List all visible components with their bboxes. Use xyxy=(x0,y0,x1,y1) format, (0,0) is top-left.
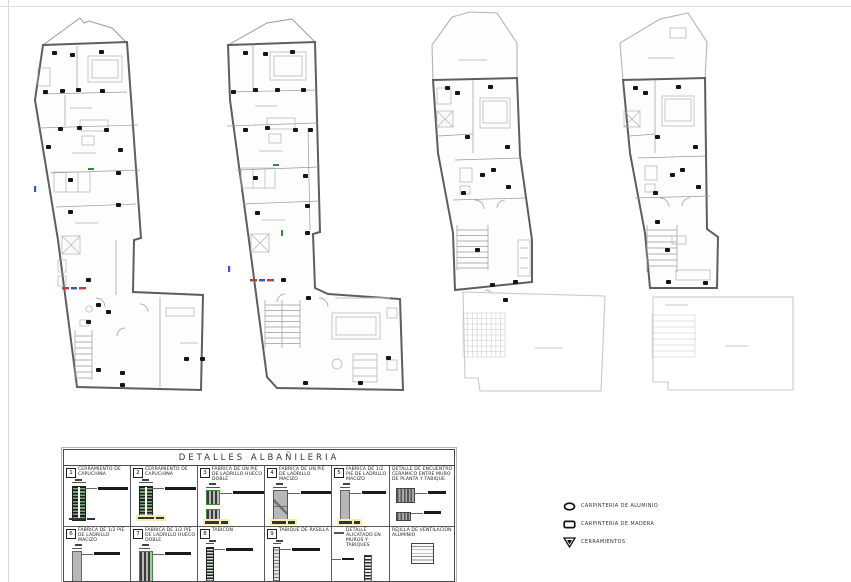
table-title: DETALLES ALBAÑILERIA xyxy=(64,450,454,466)
legend-label: CERRAMIENTOS xyxy=(581,539,625,545)
sheet-frame-top xyxy=(0,6,851,7)
detail-drawing xyxy=(133,478,196,522)
detail-label: FABRICA DE 1/2 PIE DE LADRILLO HUECO DOB… xyxy=(145,528,196,543)
detail-cell-8: 8 TABICON xyxy=(198,527,265,582)
detail-label: FABRICA DE UN PIE DE LADRILLO HUECO DOBL… xyxy=(212,467,263,482)
detail-drawing xyxy=(66,543,129,582)
detail-cell-6: 6 FABRICA DE 1/2 PIE DE LADRILLO MACIZO xyxy=(64,527,131,582)
detail-cell-5: 5 FABRICA DE 1/2 PIE DE LADRILLO MACIZO xyxy=(332,466,390,527)
detail-label: CERRAMIENTO DE CAPUCHINA xyxy=(78,467,129,477)
dash-icon xyxy=(334,532,344,534)
detail-cell-tiling: DETALLE ALICATADO EN MUROS Y TABIQUES xyxy=(332,527,390,582)
detail-label: TABICON xyxy=(212,528,233,533)
detail-number: 8 xyxy=(200,529,210,539)
detail-number: 3 xyxy=(200,468,210,478)
rect-icon xyxy=(563,520,576,529)
detail-number: 9 xyxy=(267,529,277,539)
legend-label: CARPINTERIA DE ALUMINIO xyxy=(581,503,658,509)
detail-label: REJILLA DE VENTILACION ALUMINIO xyxy=(392,528,453,538)
legend-item-aluminum: CARPINTERIA DE ALUMINIO xyxy=(563,497,658,515)
detail-label: DETALLE DE ENCUENTRO CERAMICO ENTRE MURO… xyxy=(392,467,453,482)
detail-cell-vent-grille: REJILLA DE VENTILACION ALUMINIO xyxy=(390,527,454,582)
detail-drawing xyxy=(392,482,453,526)
masonry-details-table: DETALLES ALBAÑILERIA 1 CERRAMIENTO DE CA… xyxy=(63,449,455,582)
detail-drawing xyxy=(66,478,129,522)
detail-number: 5 xyxy=(334,468,344,478)
ellipse-icon xyxy=(563,502,576,511)
detail-label: FABRICA DE UN PIE DE LADRILLO MACIZO xyxy=(279,467,330,482)
detail-number: 2 xyxy=(133,468,143,478)
legend-item-wood: CARPINTERIA DE MADERA xyxy=(563,515,658,533)
detail-cell-2: 2 CERRAMIENTO DE CAPUCHINA xyxy=(131,466,198,527)
architectural-sheet: DETALLES ALBAÑILERIA 1 CERRAMIENTO DE CA… xyxy=(0,0,851,582)
detail-drawing xyxy=(200,539,263,582)
detail-label: FABRICA DE 1/2 PIE DE LADRILLO MACIZO xyxy=(346,467,388,482)
detail-label: CERRAMIENTO DE CAPUCHINA xyxy=(145,467,196,477)
ventilation-grille xyxy=(411,543,434,564)
detail-number: 4 xyxy=(267,468,277,478)
floor-plan-4 xyxy=(610,8,805,403)
detail-number: 1 xyxy=(66,468,76,478)
floor-plan-3 xyxy=(425,8,610,408)
detail-number: 7 xyxy=(133,529,143,539)
legend-label: CARPINTERIA DE MADERA xyxy=(581,521,654,527)
legend-item-enclosures: CERRAMIENTOS xyxy=(563,533,658,551)
sheet-frame-left xyxy=(8,0,9,582)
triangle-icon xyxy=(563,537,576,548)
detail-label: FABRICA DE 1/2 PIE DE LADRILLO MACIZO xyxy=(78,528,129,543)
detail-drawing xyxy=(133,543,196,582)
detail-cell-4: 4 FABRICA DE UN PIE DE LADRILLO MACIZO xyxy=(265,466,332,527)
detail-label: DETALLE ALICATADO EN MUROS Y TABIQUES xyxy=(346,528,388,549)
detail-cell-ceramic-joint: DETALLE DE ENCUENTRO CERAMICO ENTRE MURO… xyxy=(390,466,454,527)
detail-label: TABIQUE DE RASILLA xyxy=(279,528,329,533)
detail-cell-7: 7 FABRICA DE 1/2 PIE DE LADRILLO HUECO D… xyxy=(131,527,198,582)
detail-drawing xyxy=(392,543,453,582)
detail-cell-1: 1 CERRAMIENTO DE CAPUCHINA xyxy=(64,466,131,527)
floor-plan-2 xyxy=(215,8,415,408)
detail-drawing xyxy=(267,482,330,526)
detail-cell-3: 3 FABRICA DE UN PIE DE LADRILLO HUECO DO… xyxy=(198,466,265,527)
detail-drawing xyxy=(334,549,388,582)
detail-number: 6 xyxy=(66,529,76,539)
detail-drawing xyxy=(200,482,263,526)
detail-cell-9: 9 TABIQUE DE RASILLA xyxy=(265,527,332,582)
floor-plan-1 xyxy=(30,8,215,408)
detail-drawing xyxy=(334,482,388,526)
carpentry-legend: CARPINTERIA DE ALUMINIO CARPINTERIA DE M… xyxy=(563,497,658,551)
detail-drawing xyxy=(267,539,330,582)
